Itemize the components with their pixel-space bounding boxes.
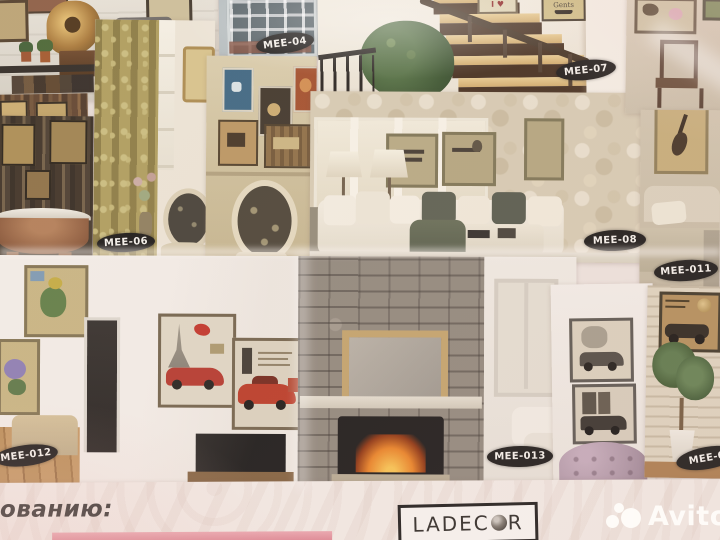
car-wheel	[204, 380, 214, 390]
books-row	[12, 74, 94, 94]
caption-text: ованию:	[0, 496, 113, 523]
fire-flames	[356, 434, 426, 472]
table-items	[498, 228, 516, 238]
avito-dot	[606, 515, 619, 528]
railing-spindle	[538, 42, 542, 72]
red-butterfly-glyph	[194, 324, 210, 336]
ficus-trunk	[679, 398, 684, 432]
rose-glyph	[668, 8, 682, 20]
picture-frame	[49, 120, 87, 164]
scene-damask-curtain	[93, 19, 216, 262]
picture-frame	[1, 124, 35, 166]
railing-spindle	[503, 30, 507, 58]
figure-glyph	[582, 392, 596, 414]
sofa-pillow-dark	[492, 192, 526, 224]
car-wheel	[172, 380, 182, 390]
avito-watermark-text: Avito	[648, 501, 720, 532]
shadow-accent	[703, 230, 719, 288]
picture-frame	[0, 0, 29, 42]
sofa-pillow	[458, 196, 490, 224]
picture-frame	[25, 170, 51, 200]
wainscot-line	[206, 172, 316, 177]
car-wheel	[276, 400, 286, 410]
poster-coffee-label	[273, 137, 299, 149]
poster-blue-motif	[231, 82, 241, 92]
globe-icon	[491, 515, 507, 531]
red-stamp-glyph	[288, 378, 298, 392]
table-items	[468, 230, 490, 238]
i-heart-picture-frame: I ♥	[477, 0, 517, 14]
postage-stamp-glyph	[210, 344, 224, 354]
ladecor-logo: LADEC R	[398, 502, 539, 540]
poster-dark-motif	[267, 103, 280, 116]
plant-pot	[40, 51, 50, 62]
ladecor-text-right: R	[507, 510, 523, 534]
poster-text-line	[665, 306, 685, 308]
scene-poster-wall	[205, 56, 316, 265]
wooden-mirror	[342, 330, 448, 406]
biplane-picture-2	[442, 132, 496, 186]
balloon-glyph	[472, 140, 482, 152]
sofa-pillow	[528, 196, 562, 226]
sofa-pillow	[324, 195, 356, 225]
wooden-chair-seat	[656, 78, 698, 89]
castle-smudge	[581, 326, 607, 348]
sofa-pillow	[356, 191, 390, 223]
bottle-glyph	[242, 348, 252, 374]
ladecor-text-left: LADEC	[412, 511, 490, 537]
tv-screen	[196, 434, 286, 476]
bed-pillow	[651, 200, 687, 225]
botanical-leaf	[8, 379, 26, 395]
gents-text: Gents	[553, 0, 574, 8]
lamp-shade	[326, 151, 362, 177]
car-wheel	[611, 426, 620, 435]
gents-picture-frame: Gents	[541, 0, 585, 21]
wooden-chair-legs	[657, 88, 703, 109]
scene-top-right-wall	[625, 0, 720, 115]
window-strip	[158, 20, 176, 170]
avito-dot	[621, 508, 641, 528]
doorway	[84, 317, 120, 452]
car-wheel	[608, 362, 617, 371]
picture-frame	[524, 118, 564, 180]
butterfly-glyph	[643, 4, 659, 16]
script-line	[258, 352, 292, 354]
botanical-blue-corner	[30, 271, 44, 281]
figure-glyph	[598, 392, 610, 414]
catalog-photo: I ♥ Gents	[0, 0, 720, 540]
avito-watermark: Avito	[604, 500, 720, 540]
avito-dots-icon	[604, 500, 644, 536]
botanical-foliage	[40, 287, 66, 317]
railing-spindle	[468, 16, 472, 42]
car-wheel	[244, 400, 254, 410]
medallion-chair-back	[231, 180, 298, 262]
mantel	[300, 396, 482, 409]
bathtub-body	[0, 218, 89, 255]
botanical-bloom-purple	[4, 359, 26, 379]
botanical-bloom-yellow	[48, 277, 62, 289]
car-wheel	[585, 426, 594, 435]
i-heart-text: I ♥	[491, 0, 504, 8]
poster-grinder-motif	[227, 133, 245, 147]
scene-bathtub	[0, 116, 94, 265]
script-line	[258, 364, 290, 366]
scene-vintage-car-wall	[551, 283, 656, 484]
mustache-icon	[555, 9, 573, 13]
poster-text-line	[665, 300, 689, 302]
green-picture-frame	[702, 0, 720, 21]
car-wheel	[584, 362, 593, 371]
scene-staircase: I ♥ Gents	[317, 0, 636, 102]
pink-bar	[52, 531, 332, 540]
script-line	[258, 358, 288, 360]
ficus-foliage	[676, 356, 715, 401]
scene-fireplace-room	[0, 255, 576, 485]
right-window-mullion	[524, 283, 528, 389]
dried-flowers	[127, 168, 161, 214]
lamp-shade	[370, 149, 408, 177]
plant-pot	[21, 52, 31, 62]
